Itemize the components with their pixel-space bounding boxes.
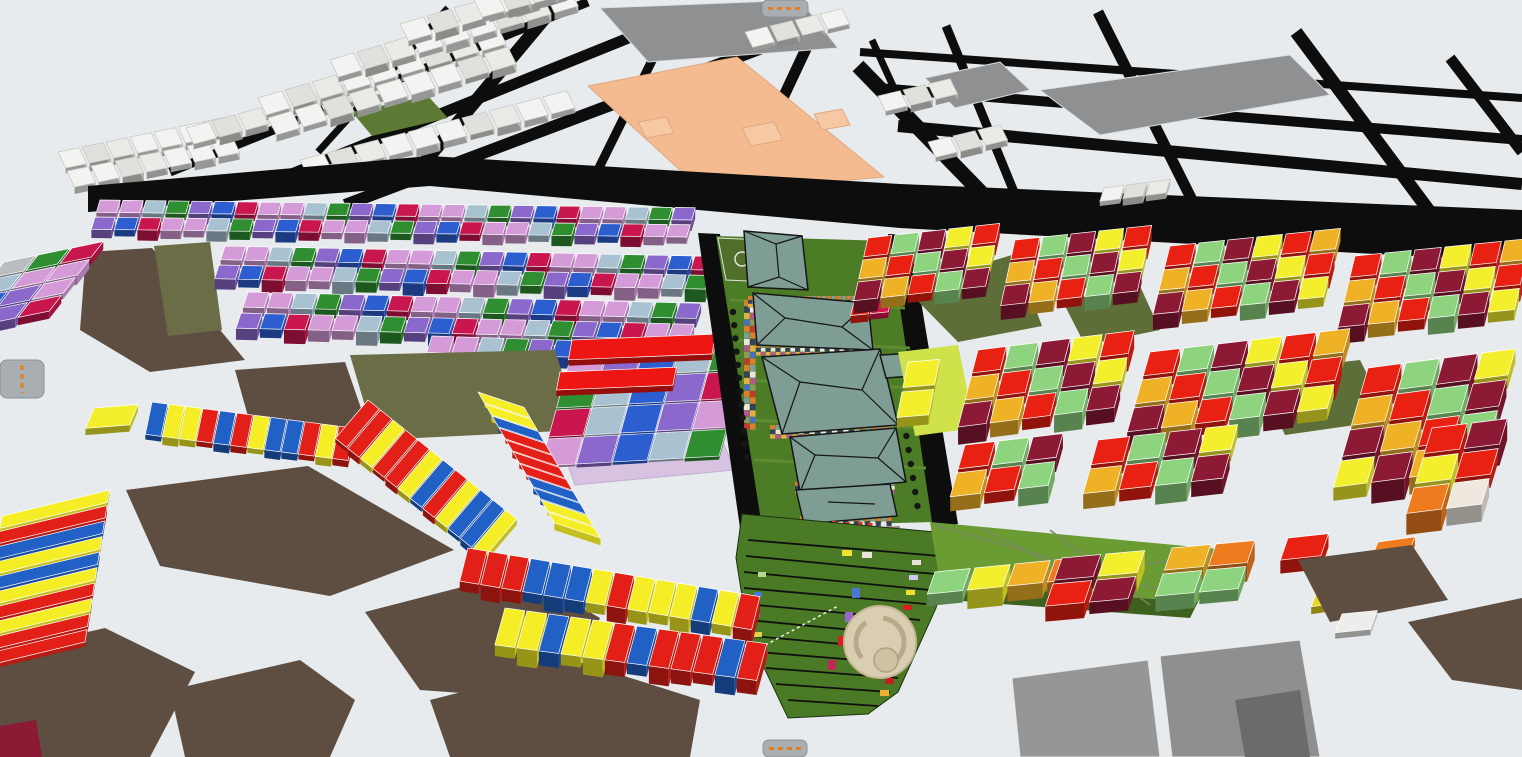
cool-row-b-block	[315, 248, 340, 262]
warm-cluster-4-block	[1428, 294, 1460, 318]
cool-row-a-block	[229, 219, 253, 232]
tree-row-left	[731, 322, 737, 328]
cool-row-a-block	[96, 200, 120, 213]
warm-cluster-4-block	[1458, 291, 1490, 315]
cool-row-b-side	[285, 280, 306, 291]
facade-band-3	[770, 430, 775, 434]
tree-row-right	[908, 461, 914, 467]
park-items-right	[912, 560, 921, 565]
warm-cluster-2-block	[1123, 225, 1152, 247]
cool-row-b-block	[262, 266, 287, 280]
cool-row-c-block	[284, 314, 310, 330]
tree-row-right	[912, 489, 918, 495]
cool-row-a-block	[395, 204, 419, 217]
block-row-south-2-side	[715, 675, 735, 696]
cool-row-a-block	[349, 203, 373, 216]
cool-row-a-block	[574, 223, 598, 236]
facade-band-2	[815, 348, 820, 352]
warm-cluster-1-block	[854, 279, 882, 300]
facade-band-1	[748, 304, 753, 308]
warm-cluster-2-block	[1001, 283, 1030, 305]
tree-row-left	[736, 375, 742, 381]
warm-cluster-4-block	[1434, 269, 1466, 293]
cool-row-a-block	[390, 221, 414, 234]
warm-cluster-3-block	[1310, 228, 1341, 251]
cool-row-a-block	[142, 201, 166, 214]
cool-row-a-block	[464, 205, 488, 218]
cool-row-b-side	[309, 281, 330, 290]
warm-cluster-4-block	[1464, 266, 1496, 290]
cool-row-c-block	[260, 314, 286, 330]
warm-cluster-2-block	[1006, 260, 1035, 282]
cool-row-a-side	[275, 232, 295, 243]
warm-cluster-1-block	[972, 223, 1000, 244]
cool-row-a-block	[666, 225, 690, 238]
cool-row-a-block	[671, 208, 695, 221]
warm-cluster-4-block	[1374, 275, 1406, 299]
tree-row-left	[730, 309, 736, 315]
warm-cluster-2-block	[1062, 254, 1091, 276]
cool-row-a-block	[648, 207, 672, 220]
cool-row-c-side	[332, 331, 353, 341]
cool-row-a-block	[160, 218, 184, 231]
cool-row-c-block	[572, 321, 598, 337]
facade-strip-left	[744, 385, 750, 391]
facade-strip-left	[750, 372, 756, 378]
facade-band-2	[756, 352, 761, 356]
warm-cluster-3-block	[1275, 255, 1306, 278]
cool-row-a-side	[528, 235, 548, 242]
park-items-left	[754, 632, 762, 637]
cool-row-c-block	[507, 299, 533, 315]
facade-strip-left	[744, 359, 750, 365]
cool-row-b-side	[661, 288, 682, 297]
cool-row-a-side	[321, 232, 341, 239]
cool-row-b-block	[332, 268, 357, 282]
cool-row-a-block	[252, 219, 276, 232]
cool-row-c-block	[483, 298, 509, 314]
model-viewport	[0, 0, 1522, 757]
cool-row-b-block	[309, 267, 334, 281]
cool-row-c-block	[291, 293, 317, 309]
cool-row-a-side	[620, 236, 640, 247]
cool-row-a-side	[367, 233, 387, 242]
facade-band-1	[832, 296, 837, 300]
cool-row-a-block	[91, 217, 115, 230]
cool-row-a-block	[556, 206, 580, 219]
warm-cluster-1-block	[908, 273, 936, 294]
tree-row-left	[739, 414, 745, 420]
cool-row-c-side	[260, 329, 281, 339]
cool-row-a-block	[533, 206, 557, 219]
cool-row-b-side	[497, 285, 518, 296]
cool-row-b-block	[432, 251, 457, 265]
cool-row-c-block	[411, 296, 437, 312]
cool-row-a-side	[252, 231, 272, 238]
block-row-south-2-side	[649, 666, 669, 687]
tree-row-right	[914, 503, 920, 509]
park-items-left	[758, 572, 766, 577]
cool-row-c-side	[356, 331, 377, 346]
warm-cluster-2-block	[1118, 248, 1147, 270]
cool-row-c-block	[363, 295, 389, 311]
cool-row-b-block	[379, 269, 404, 283]
cool-row-b-block	[644, 255, 669, 269]
cool-row-b-block	[479, 252, 504, 266]
cool-row-c-block	[236, 313, 262, 329]
cool-row-a-block	[321, 220, 345, 233]
facade-band-3	[770, 434, 775, 438]
cool-row-c-block	[428, 318, 454, 334]
cool-row-a-block	[597, 224, 621, 237]
warm-cluster-4-block	[1380, 250, 1412, 274]
facade-band-1	[837, 296, 842, 300]
facade-strip-left	[750, 333, 756, 339]
warm-cluster-3-block	[1252, 234, 1283, 257]
warm-cluster-2-block	[1090, 251, 1119, 273]
block-row-south-2-side	[517, 648, 537, 669]
warm-cluster-3-block	[1211, 285, 1242, 308]
facade-band-2	[795, 348, 800, 352]
cool-row-b-block	[403, 269, 428, 283]
warm-cluster-4-block	[1350, 253, 1382, 277]
facade-band-2	[800, 348, 805, 352]
cool-row-b-side	[238, 279, 259, 288]
cool-row-b-block	[338, 249, 363, 263]
facade-band-3	[781, 434, 786, 438]
cool-row-a-block	[487, 205, 511, 218]
cool-row-b-block	[614, 274, 639, 288]
cool-row-b-side	[473, 284, 494, 298]
cool-row-b-block	[667, 256, 692, 270]
cool-row-b-block	[285, 267, 310, 281]
cool-row-b-block	[356, 268, 381, 282]
warm-cluster-1-block	[913, 251, 941, 272]
cool-row-a-side	[206, 231, 226, 242]
cool-row-a-block	[643, 224, 667, 237]
cool-row-a-side	[551, 235, 571, 246]
cool-row-c-side	[236, 328, 257, 340]
cool-row-a-side	[505, 235, 525, 244]
facade-strip-left	[744, 320, 750, 326]
tree-row-left	[741, 428, 747, 434]
warm-cluster-1-block	[918, 229, 946, 250]
cool-row-c-side	[380, 332, 401, 344]
cool-row-a-block	[436, 222, 460, 235]
cool-row-a-block	[528, 223, 552, 236]
warm-cluster-4-side	[1428, 316, 1454, 335]
cool-row-a-block	[326, 203, 350, 216]
tree-row-left	[733, 348, 739, 354]
cool-row-b-side	[685, 289, 706, 303]
cool-row-a-side	[91, 229, 111, 238]
cool-row-b-block	[544, 272, 569, 286]
yellow-block-pair-block	[903, 359, 940, 387]
cool-row-c-side	[284, 329, 305, 344]
cool-row-b-side	[567, 286, 588, 297]
park-items-center	[828, 660, 836, 670]
park-items-right	[903, 605, 912, 610]
cool-row-c-block	[500, 320, 526, 336]
warm-cluster-2-block	[1057, 277, 1086, 299]
cool-row-a-side	[390, 233, 410, 240]
cool-row-a-side	[436, 234, 456, 243]
cool-row-c-block	[315, 294, 341, 310]
warm-cluster-4-block	[1470, 241, 1502, 265]
facade-band-5	[881, 521, 886, 526]
facade-band-2	[810, 348, 815, 352]
cool-row-b-side	[426, 283, 447, 294]
warm-cluster-2-block	[1095, 228, 1124, 250]
facade-strip-left	[750, 385, 756, 391]
cool-row-a-side	[482, 234, 502, 245]
cool-row-c-block	[380, 317, 406, 333]
tree-row-left	[738, 401, 744, 407]
warm-cluster-2-block	[1067, 231, 1096, 253]
cool-row-c-block	[476, 319, 502, 335]
cool-row-b-side	[332, 281, 353, 295]
cool-row-d-block	[452, 337, 479, 354]
facade-strip-left	[744, 326, 750, 332]
park-items-right	[885, 678, 894, 684]
cool-row-c-block	[603, 301, 629, 317]
cool-row-c-block	[356, 316, 382, 332]
cool-row-b-side	[591, 287, 612, 296]
se-blocks-1-side	[967, 587, 1002, 610]
cool-row-a-block	[114, 217, 138, 230]
warm-cluster-2-block	[1039, 234, 1068, 256]
cool-row-b-block	[456, 251, 481, 265]
facade-band-2	[771, 352, 776, 356]
cool-row-a-block	[413, 221, 437, 234]
cool-row-a-side	[666, 237, 686, 244]
facade-band-2	[776, 348, 781, 352]
warm-cluster-3-block	[1298, 276, 1329, 299]
cool-row-b-block	[450, 270, 475, 284]
facade-strip-left	[744, 398, 750, 404]
cool-row-a-block	[367, 221, 391, 234]
cool-row-a-block	[602, 207, 626, 220]
warm-cluster-2-block	[1113, 271, 1142, 293]
cool-row-b-side	[262, 280, 283, 294]
cool-row-d-block	[427, 336, 454, 353]
park-items-right	[906, 590, 915, 595]
warm-cluster-3-block	[1217, 261, 1248, 284]
facade-strip-left	[750, 326, 756, 332]
cool-row-b-side	[215, 279, 236, 290]
warm-cluster-3-block	[1182, 288, 1213, 311]
warm-cluster-4-block	[1404, 272, 1436, 296]
warm-cluster-1-block	[881, 276, 909, 297]
facade-band-2	[761, 348, 766, 352]
warm-cluster-3-side	[1240, 303, 1266, 321]
cool-row-a-block	[551, 223, 575, 236]
cool-row-b-side	[614, 287, 635, 301]
cool-row-c-block	[459, 297, 485, 313]
cool-row-a-block	[275, 219, 299, 232]
cool-row-c-side	[308, 330, 329, 342]
facade-band-1	[748, 296, 753, 300]
facade-strip-left	[744, 313, 750, 319]
cool-row-c-block	[524, 320, 550, 336]
warm-cluster-4-block	[1410, 247, 1442, 271]
cool-row-a-block	[137, 218, 161, 231]
cool-row-a-side	[298, 232, 318, 241]
cool-row-b-block	[291, 248, 316, 262]
warm-cluster-1-block	[935, 270, 963, 291]
cool-row-c-block	[531, 299, 557, 315]
facade-band-3	[776, 434, 781, 438]
park-circle-inner	[874, 648, 898, 672]
facade-strip-left	[744, 404, 750, 410]
warm-cluster-2-block	[1085, 274, 1114, 296]
warm-cluster-9-side	[1155, 482, 1187, 505]
warm-cluster-4-block	[1368, 300, 1400, 324]
facade-band-3	[770, 425, 775, 429]
facade-band-2	[766, 348, 771, 352]
facade-strip-left	[750, 424, 756, 430]
cool-row-a-side	[597, 236, 617, 243]
cool-row-c-block	[627, 302, 653, 318]
facade-band-2	[776, 352, 781, 356]
cool-row-b-side	[520, 285, 541, 294]
park-items-center	[842, 550, 852, 556]
warm-cluster-1-block	[945, 226, 973, 247]
cool-row-c-block	[332, 315, 358, 331]
facade-strip-left	[750, 359, 756, 365]
cool-row-b-side	[450, 284, 471, 293]
cool-row-c-block	[452, 318, 478, 334]
facade-strip-left	[750, 398, 756, 404]
warm-cluster-4-block	[1440, 244, 1472, 268]
roof-c	[762, 349, 898, 434]
yellow-block-pair-block	[897, 389, 934, 417]
facade-strip-left	[744, 365, 750, 371]
cool-row-a-block	[625, 207, 649, 220]
warm-cluster-3-block	[1153, 291, 1184, 314]
warm-cluster-2-block	[1029, 280, 1058, 302]
facade-strip-left	[750, 411, 756, 417]
cool-row-b-block	[638, 274, 663, 288]
cool-row-a-block	[620, 224, 644, 237]
cool-row-b-block	[409, 250, 434, 264]
facade-strip-left	[750, 352, 756, 358]
cool-row-a-block	[183, 218, 207, 231]
cool-row-b-block	[591, 273, 616, 287]
cool-row-a-side	[643, 236, 663, 245]
cool-row-a-block	[257, 202, 281, 215]
facade-band-2	[781, 348, 786, 352]
warm-cluster-4-block	[1344, 278, 1376, 302]
facade-strip-left	[750, 404, 756, 410]
cool-row-c-block	[339, 294, 365, 310]
cool-row-c-block	[435, 297, 461, 313]
facade-strip-left	[750, 346, 756, 352]
model-canvas[interactable]	[0, 0, 1522, 757]
facade-strip-left	[744, 339, 750, 345]
cool-row-c-block	[267, 293, 293, 309]
cool-row-a-block	[188, 201, 212, 214]
cool-row-a-block	[510, 205, 534, 218]
cool-row-b-side	[544, 286, 565, 300]
cool-row-a-side	[183, 230, 203, 237]
cool-row-b-block	[473, 271, 498, 285]
facade-band-3	[776, 430, 781, 434]
facade-strip-left	[750, 339, 756, 345]
warm-cluster-2-block	[1011, 237, 1040, 259]
gray-plot-se-dark	[1235, 690, 1310, 757]
warm-cluster-2-block	[1034, 257, 1063, 279]
facade-band-2	[766, 352, 771, 356]
park-items-right	[880, 690, 889, 696]
facade-strip-left	[744, 372, 750, 378]
warm-cluster-4-block	[1338, 303, 1370, 327]
cool-row-a-block	[280, 202, 304, 215]
cool-row-a-block	[579, 206, 603, 219]
warm-cluster-3-block	[1188, 264, 1219, 287]
facade-band-2	[761, 352, 766, 356]
roof-e	[796, 484, 897, 524]
warm-cluster-3-block	[1194, 240, 1225, 263]
roof-d	[790, 428, 906, 492]
cool-row-c-block	[243, 292, 269, 308]
cool-row-a-block	[482, 222, 506, 235]
facade-strip-left	[744, 378, 750, 384]
warm-cluster-3-side	[1153, 312, 1179, 330]
cool-row-c-block	[596, 322, 622, 338]
warm-cluster-3-block	[1159, 267, 1190, 290]
cool-row-a-side	[574, 236, 594, 245]
cool-row-a-block	[298, 220, 322, 233]
cool-row-b-block	[221, 246, 246, 260]
cool-row-a-side	[344, 233, 364, 244]
facade-band-2	[786, 348, 791, 352]
cool-row-a-side	[459, 234, 479, 241]
cool-row-b-block	[526, 253, 551, 267]
facade-band-2	[805, 348, 810, 352]
cool-row-b-block	[244, 247, 269, 261]
cool-row-c-block	[404, 317, 430, 333]
cool-row-b-block	[550, 253, 575, 267]
tree-row-right	[905, 447, 911, 453]
warm-cluster-1-block	[864, 235, 892, 256]
tree-row-right	[903, 433, 909, 439]
warm-cluster-3-block	[1281, 231, 1312, 254]
warm-cluster-3-block	[1304, 252, 1335, 275]
cool-row-a-block	[505, 222, 529, 235]
cool-row-a-block	[418, 204, 442, 217]
cool-row-a-side	[229, 231, 249, 240]
cool-row-a-side	[160, 230, 180, 239]
cool-row-b-block	[503, 252, 528, 266]
tree-row-left	[732, 335, 738, 341]
facade-strip-left	[744, 352, 750, 358]
cool-row-b-block	[362, 249, 387, 263]
darkred-corner	[0, 720, 42, 757]
warm-cluster-4-block	[1488, 288, 1520, 312]
cool-row-b-block	[268, 247, 293, 261]
tree-row-left	[735, 362, 741, 368]
park-items-right	[909, 575, 918, 580]
cool-row-c-block	[555, 300, 581, 316]
warm-cluster-1-block	[962, 267, 990, 288]
park-items-center	[852, 588, 860, 598]
cool-row-b-block	[426, 270, 451, 284]
facade-strip-left	[750, 417, 756, 423]
facade-band-2	[771, 348, 776, 352]
facade-band-2	[790, 348, 795, 352]
warm-cluster-1-block	[886, 254, 914, 275]
